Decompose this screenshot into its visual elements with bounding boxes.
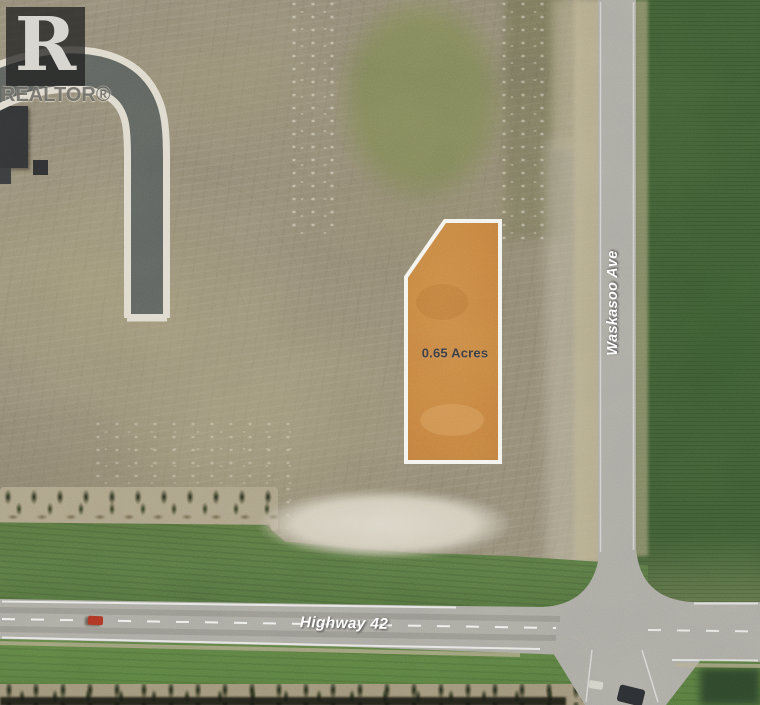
parcel-texture: [420, 404, 484, 436]
realtor-watermark-text: REALTOR®: [1, 84, 105, 107]
parcel-overlay: [0, 0, 760, 705]
road-label-waskasoo: Waskasoo Ave: [605, 250, 621, 355]
parcel-texture: [416, 284, 468, 320]
realtor-watermark: R REALTOR®: [0, 0, 112, 112]
parcel-area-label: 0.65 Acres: [422, 346, 489, 361]
realtor-logo-letter: R: [15, 8, 77, 82]
aerial-map: 0.65 Acres Waskasoo Ave Highway 42 R REA…: [0, 0, 760, 705]
realtor-logo-box: R: [6, 7, 85, 86]
road-label-highway: Highway 42: [300, 614, 389, 634]
